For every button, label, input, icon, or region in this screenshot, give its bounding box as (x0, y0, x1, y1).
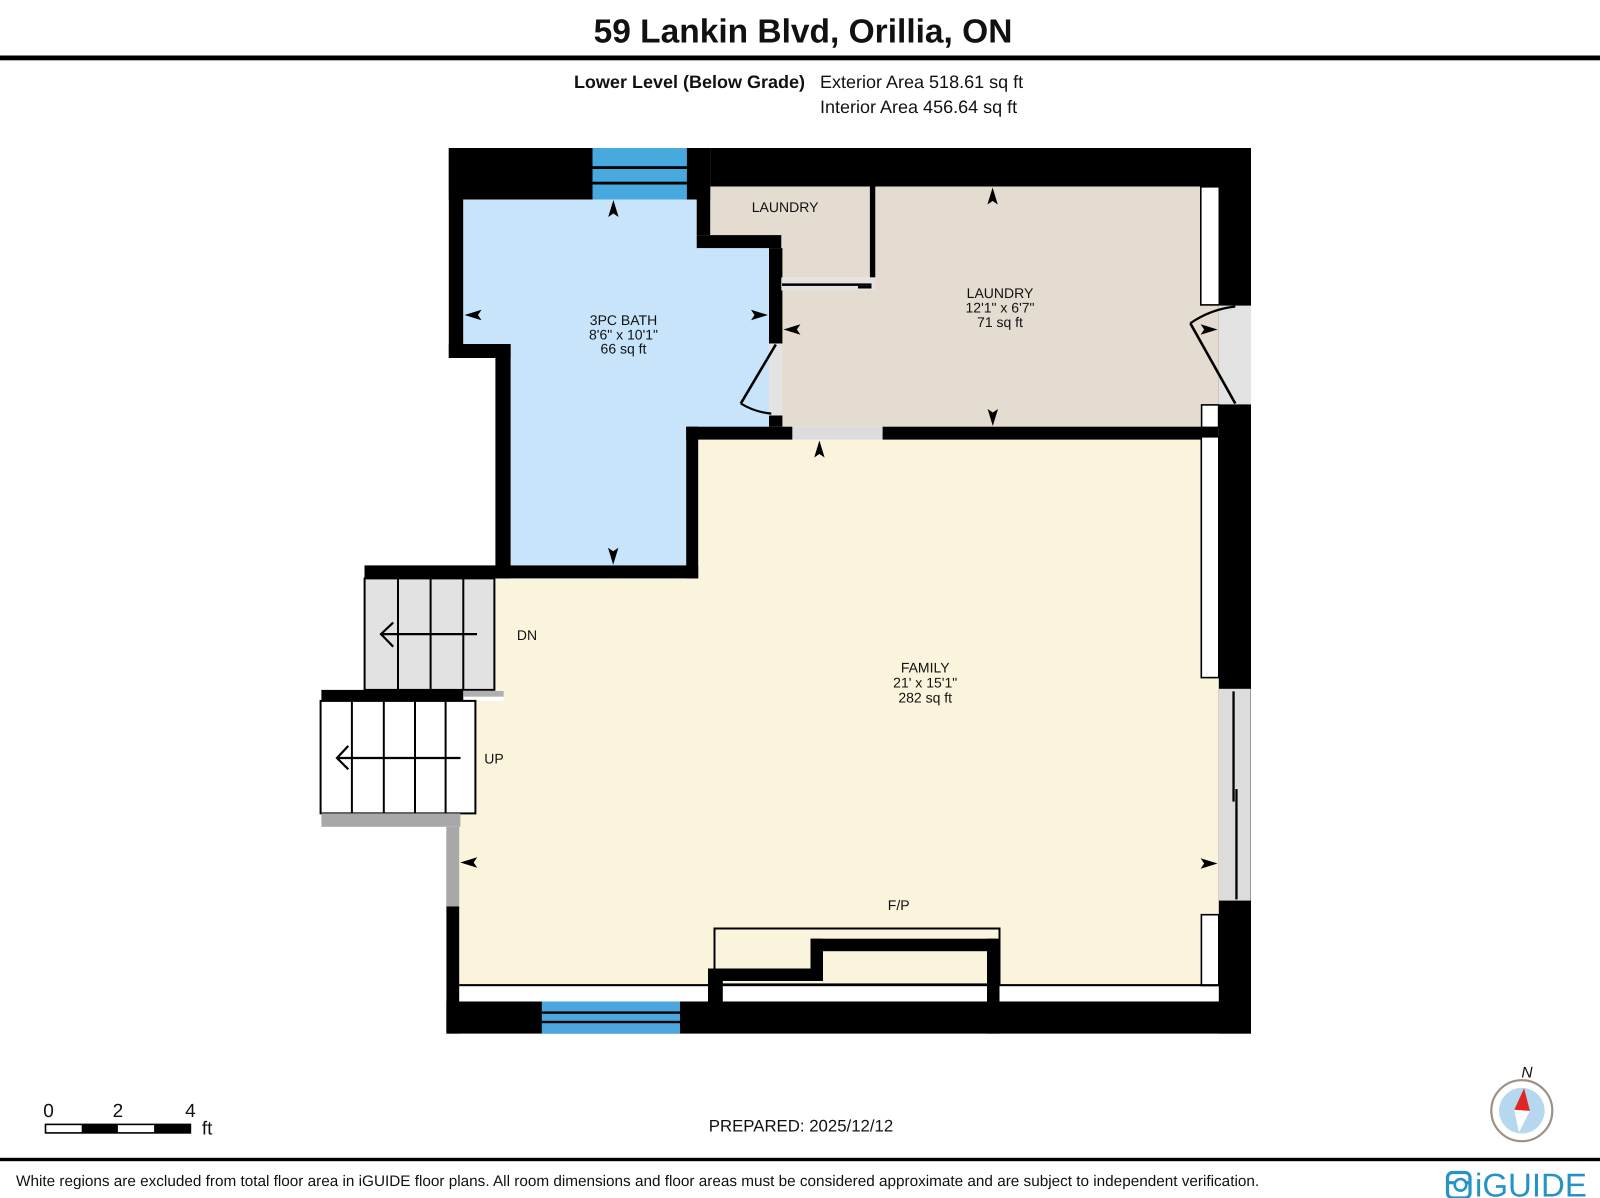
svg-text:N: N (1521, 1065, 1533, 1082)
svg-text:71 sq ft: 71 sq ft (977, 314, 1023, 330)
svg-text:F/P: F/P (888, 897, 910, 913)
svg-text:iGUIDE: iGUIDE (1475, 1167, 1587, 1198)
svg-text:LAUNDRY: LAUNDRY (752, 199, 819, 215)
svg-text:Lower Level (Below Grade): Lower Level (Below Grade) (574, 72, 805, 92)
svg-text:Exterior Area 518.61 sq ft: Exterior Area 518.61 sq ft (820, 72, 1023, 92)
svg-text:282 sq ft: 282 sq ft (898, 690, 952, 706)
svg-text:DN: DN (517, 627, 537, 643)
svg-text:White regions are excluded fro: White regions are excluded from total fl… (16, 1173, 1259, 1190)
svg-text:4: 4 (185, 1101, 196, 1122)
svg-text:FAMILY: FAMILY (901, 659, 950, 675)
svg-text:66 sq ft: 66 sq ft (601, 341, 647, 357)
svg-text:PREPARED: 2025/12/12: PREPARED: 2025/12/12 (709, 1117, 893, 1136)
svg-text:Interior Area 456.64 sq ft: Interior Area 456.64 sq ft (820, 97, 1017, 117)
svg-text:ft: ft (202, 1119, 213, 1140)
svg-text:59 Lankin Blvd, Orillia, ON: 59 Lankin Blvd, Orillia, ON (594, 14, 1013, 51)
svg-text:21' x 15'1": 21' x 15'1" (893, 675, 957, 691)
svg-text:0: 0 (43, 1101, 54, 1122)
svg-text:UP: UP (484, 751, 503, 767)
svg-text:2: 2 (113, 1101, 124, 1122)
